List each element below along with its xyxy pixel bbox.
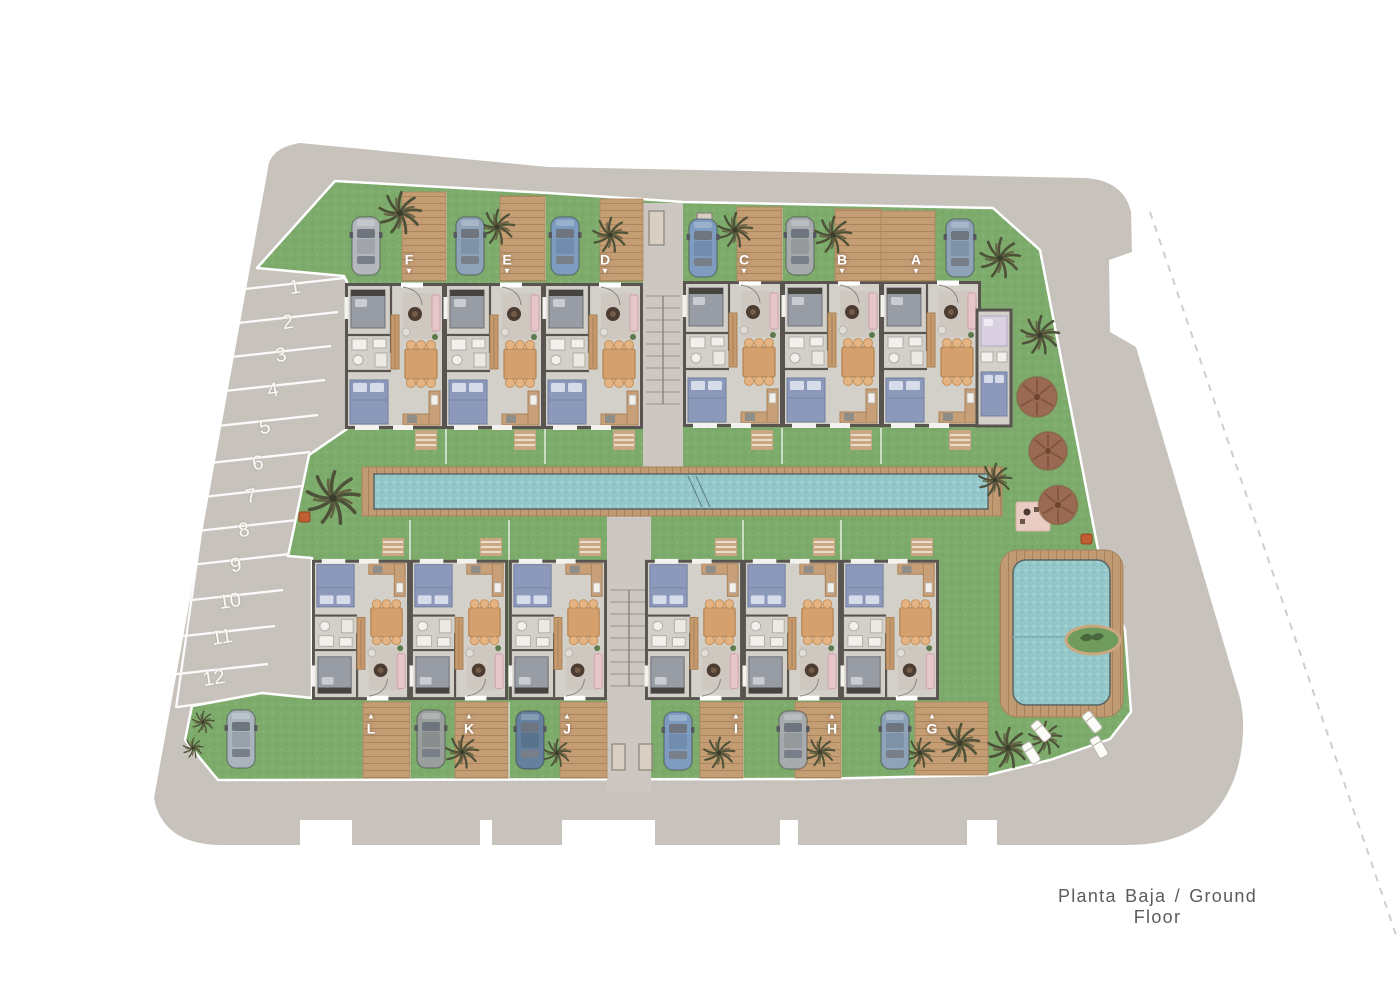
community-pool <box>1000 550 1123 717</box>
unit-H <box>743 559 840 701</box>
car-icon <box>514 711 547 769</box>
pool-planter-island <box>1066 626 1120 654</box>
lap-pool <box>362 467 1002 516</box>
unit-D <box>543 283 642 431</box>
unit-A <box>881 281 980 429</box>
round-tree-icon <box>1039 486 1078 525</box>
site-plan-canvas: F ▼ E ▼ D ▼ C ▼ B ▼ A ▼ ▲ L ▲ K ▲ J ▲ I … <box>0 0 1400 990</box>
round-tree-icon <box>1017 377 1057 417</box>
car-icon <box>350 217 383 275</box>
car-icon <box>225 710 258 768</box>
unit-E <box>444 283 543 431</box>
building-block-top-left <box>345 283 642 431</box>
car-icon <box>454 217 487 275</box>
car-icon <box>687 219 720 277</box>
unit-I <box>645 559 742 701</box>
car-icon <box>549 217 582 275</box>
car-icon <box>415 710 448 768</box>
car-icon <box>879 711 912 769</box>
car-icon <box>944 219 977 277</box>
building-block-bottom-left <box>312 559 606 701</box>
unit-L <box>312 559 409 701</box>
unit-G <box>841 559 938 701</box>
unit-C <box>683 281 782 429</box>
car-icon <box>662 712 695 770</box>
building-block-top-right <box>683 281 1012 429</box>
unit-F <box>345 283 444 431</box>
unit-B <box>782 281 881 429</box>
building-block-bottom-right <box>645 559 938 701</box>
unit-K <box>410 559 507 701</box>
site-plan-drawing <box>0 0 1400 990</box>
car-icon <box>777 711 810 769</box>
unit-J <box>509 559 606 701</box>
unit-A-annex <box>977 310 1011 426</box>
car-icon <box>784 217 817 275</box>
round-tree-icon <box>1029 432 1067 470</box>
